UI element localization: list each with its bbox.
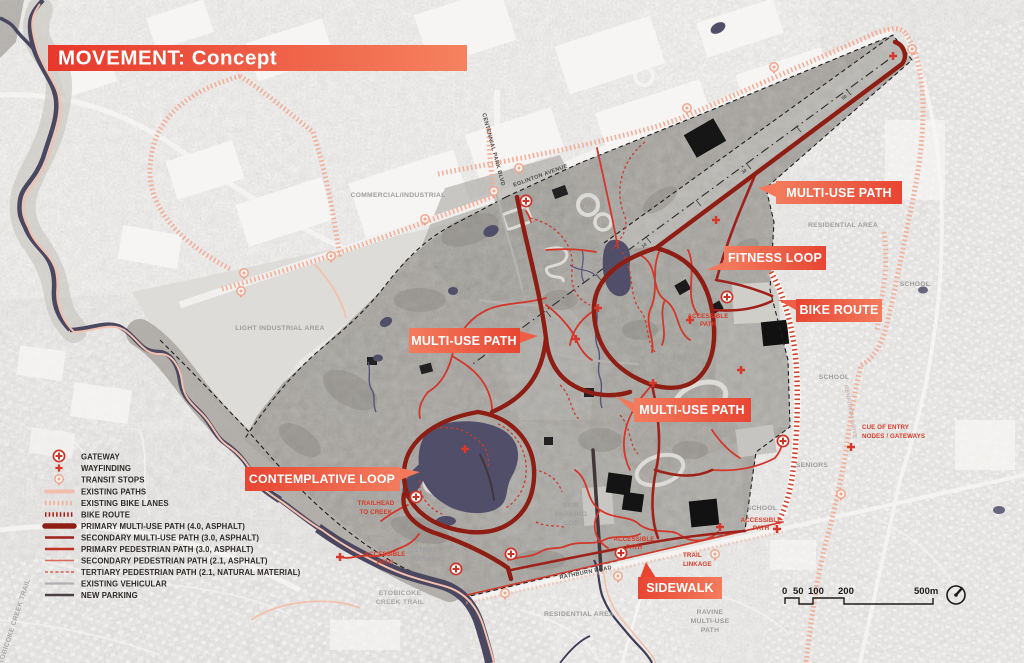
svg-text:SCHOOL: SCHOOL (900, 281, 931, 288)
svg-text:COMMERCIAL/INDUSTRIAL: COMMERCIAL/INDUSTRIAL (350, 192, 445, 199)
svg-text:MULTI-USE PATH: MULTI-USE PATH (411, 334, 517, 348)
svg-text:CONTEMPLATIVE LOOP: CONTEMPLATIVE LOOP (249, 472, 395, 486)
svg-text:SECONDARY PEDESTRIAN PATH (2.1: SECONDARY PEDESTRIAN PATH (2.1, ASPHALT) (81, 557, 268, 566)
svg-text:500m: 500m (914, 586, 938, 597)
svg-text:NEW PARKING: NEW PARKING (81, 591, 138, 600)
svg-text:SECONDARY MULTI-USE PATH (3.0,: SECONDARY MULTI-USE PATH (3.0, ASPHALT) (81, 534, 259, 543)
svg-text:RESIDENTIAL AREA: RESIDENTIAL AREA (544, 611, 614, 618)
svg-text:EXISTING VEHICULAR: EXISTING VEHICULAR (81, 580, 167, 589)
svg-text:PRIMARY PEDESTRIAN PATH (3.0,: PRIMARY PEDESTRIAN PATH (3.0, ASPHALT) (81, 545, 254, 554)
svg-text:SCHOOL: SCHOOL (747, 505, 778, 512)
svg-text:SCHOOL: SCHOOL (819, 374, 850, 381)
svg-text:EXISTING BIKE LANES: EXISTING BIKE LANES (81, 499, 169, 508)
svg-text:50: 50 (793, 586, 804, 597)
svg-text:0: 0 (782, 586, 787, 597)
svg-text:BIKE ROUTE: BIKE ROUTE (799, 303, 878, 317)
svg-text:PRIMARY MULTI-USE PATH (4.0, A: PRIMARY MULTI-USE PATH (4.0, ASPHALT) (81, 522, 245, 531)
svg-text:TERTIARY PEDESTRIAN PATH (2.1,: TERTIARY PEDESTRIAN PATH (2.1, NATURAL M… (81, 568, 301, 577)
svg-text:WAYFINDING: WAYFINDING (81, 464, 131, 473)
svg-text:SIDEWALK: SIDEWALK (646, 581, 714, 595)
svg-text:MOVEMENT: Concept: MOVEMENT: Concept (58, 47, 277, 70)
svg-text:100: 100 (808, 586, 824, 597)
svg-text:GATEWAY: GATEWAY (81, 453, 121, 462)
svg-text:BIKE ROUTE: BIKE ROUTE (81, 511, 130, 520)
svg-text:MULTI-USE PATH: MULTI-USE PATH (786, 186, 892, 200)
svg-text:TRANSIT STOPS: TRANSIT STOPS (81, 476, 145, 485)
svg-text:200: 200 (838, 586, 854, 597)
svg-text:EXISTING PATHS: EXISTING PATHS (81, 488, 146, 497)
svg-text:RESIDENTIAL AREA: RESIDENTIAL AREA (808, 222, 878, 229)
svg-text:MULTI-USE PATH: MULTI-USE PATH (639, 403, 745, 417)
svg-text:FITNESS LOOP: FITNESS LOOP (728, 251, 822, 265)
svg-text:LIGHT INDUSTRIAL AREA: LIGHT INDUSTRIAL AREA (235, 325, 324, 332)
svg-text:SENIORS: SENIORS (796, 462, 829, 469)
